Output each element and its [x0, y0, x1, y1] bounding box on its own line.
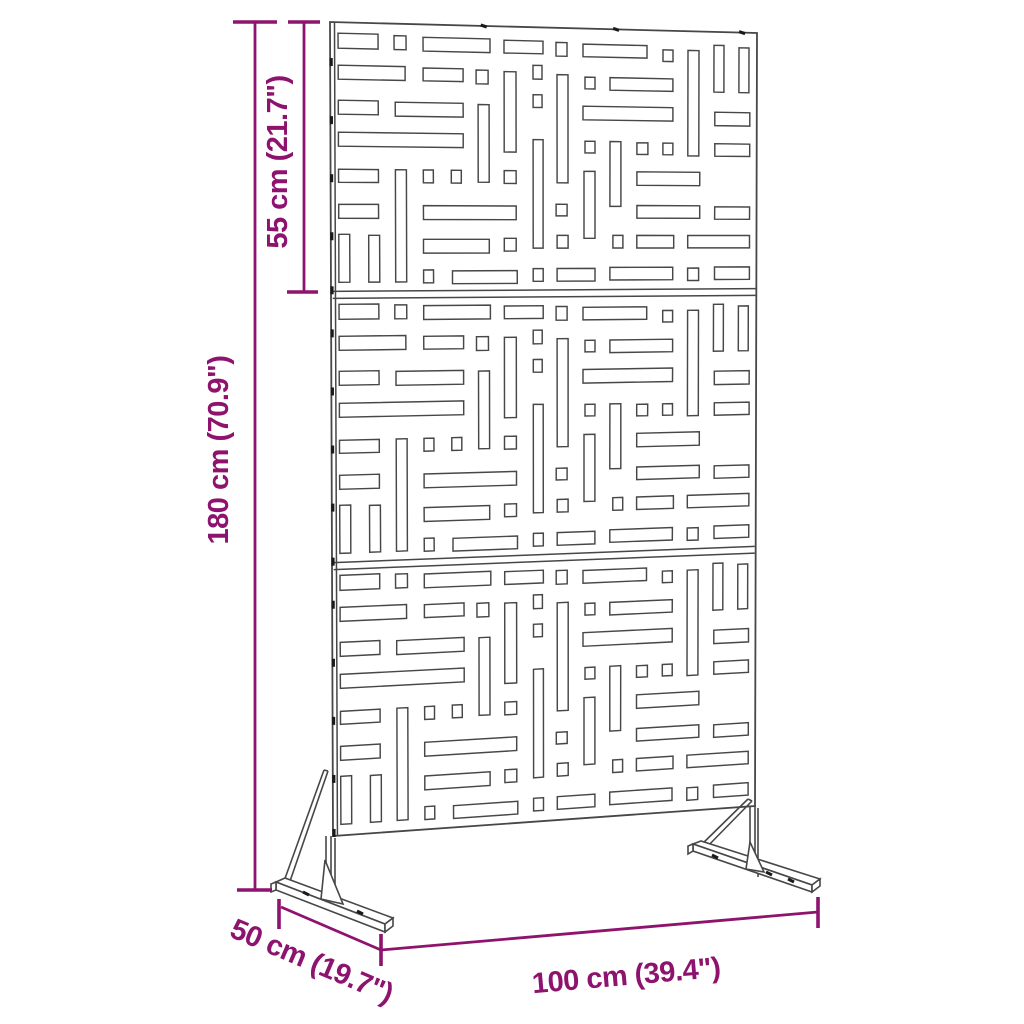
- dimension-label-section-height: 55 cm (21.7"): [262, 75, 294, 248]
- dimension-label-width: 100 cm (39.4"): [531, 952, 722, 1000]
- dimension-label-total-height: 180 cm (70.9"): [203, 356, 235, 545]
- diagram-canvas: 180 cm (70.9") 55 cm (21.7") 100 cm (39.…: [0, 0, 1024, 1024]
- product-dimension-diagram: 180 cm (70.9") 55 cm (21.7") 100 cm (39.…: [0, 0, 1024, 1024]
- screen-panel-drawing: [330, 22, 757, 837]
